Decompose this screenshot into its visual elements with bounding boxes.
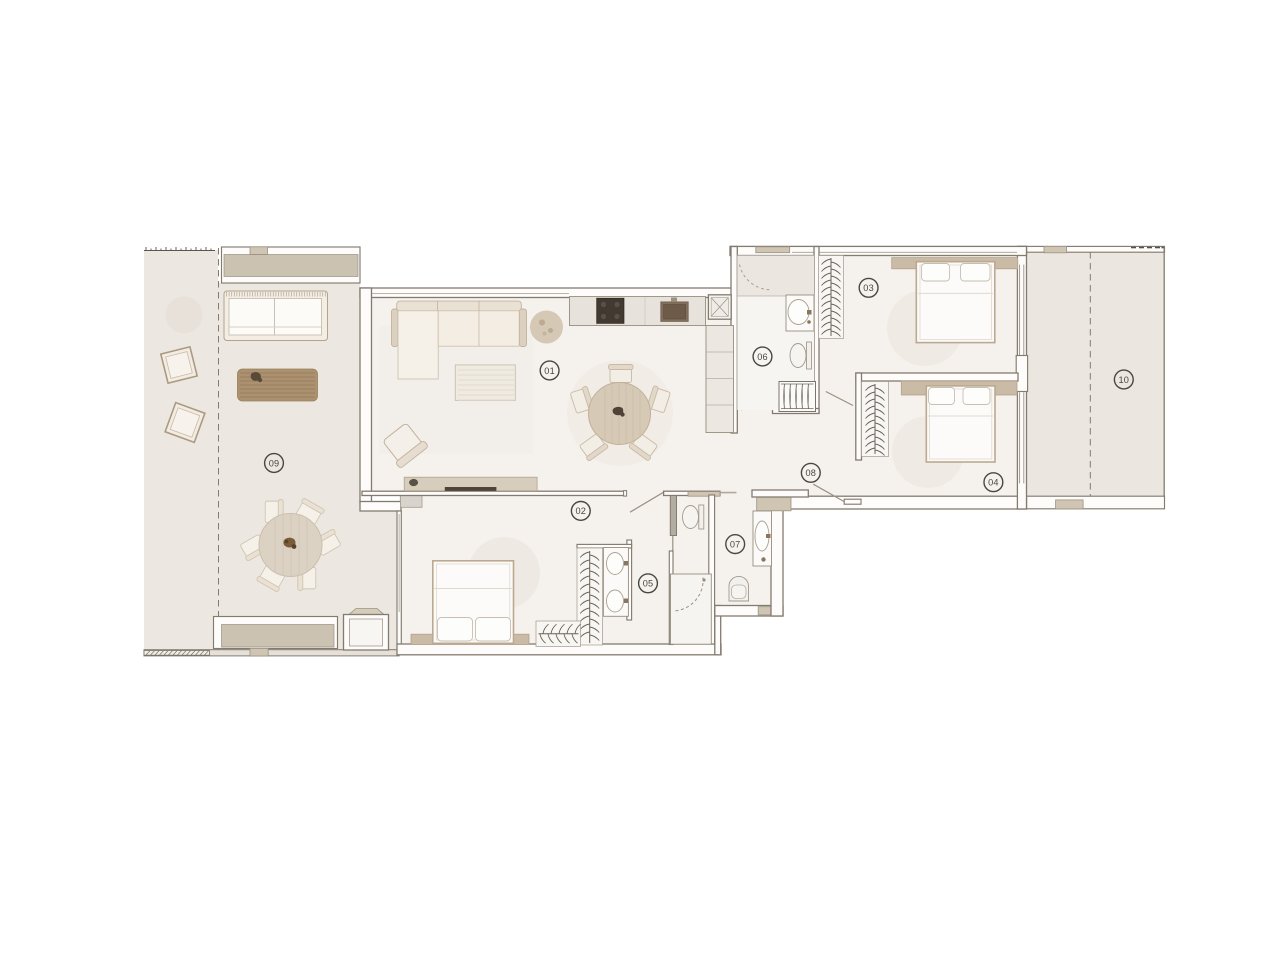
svg-text:08: 08 [805, 468, 816, 478]
svg-text:09: 09 [269, 458, 280, 468]
svg-text:04: 04 [988, 478, 999, 488]
svg-text:07: 07 [730, 539, 741, 549]
svg-text:10: 10 [1118, 375, 1129, 385]
svg-text:03: 03 [863, 283, 874, 293]
svg-text:02: 02 [575, 506, 586, 516]
svg-text:05: 05 [643, 579, 654, 589]
svg-text:01: 01 [544, 366, 555, 376]
svg-text:06: 06 [757, 352, 768, 362]
